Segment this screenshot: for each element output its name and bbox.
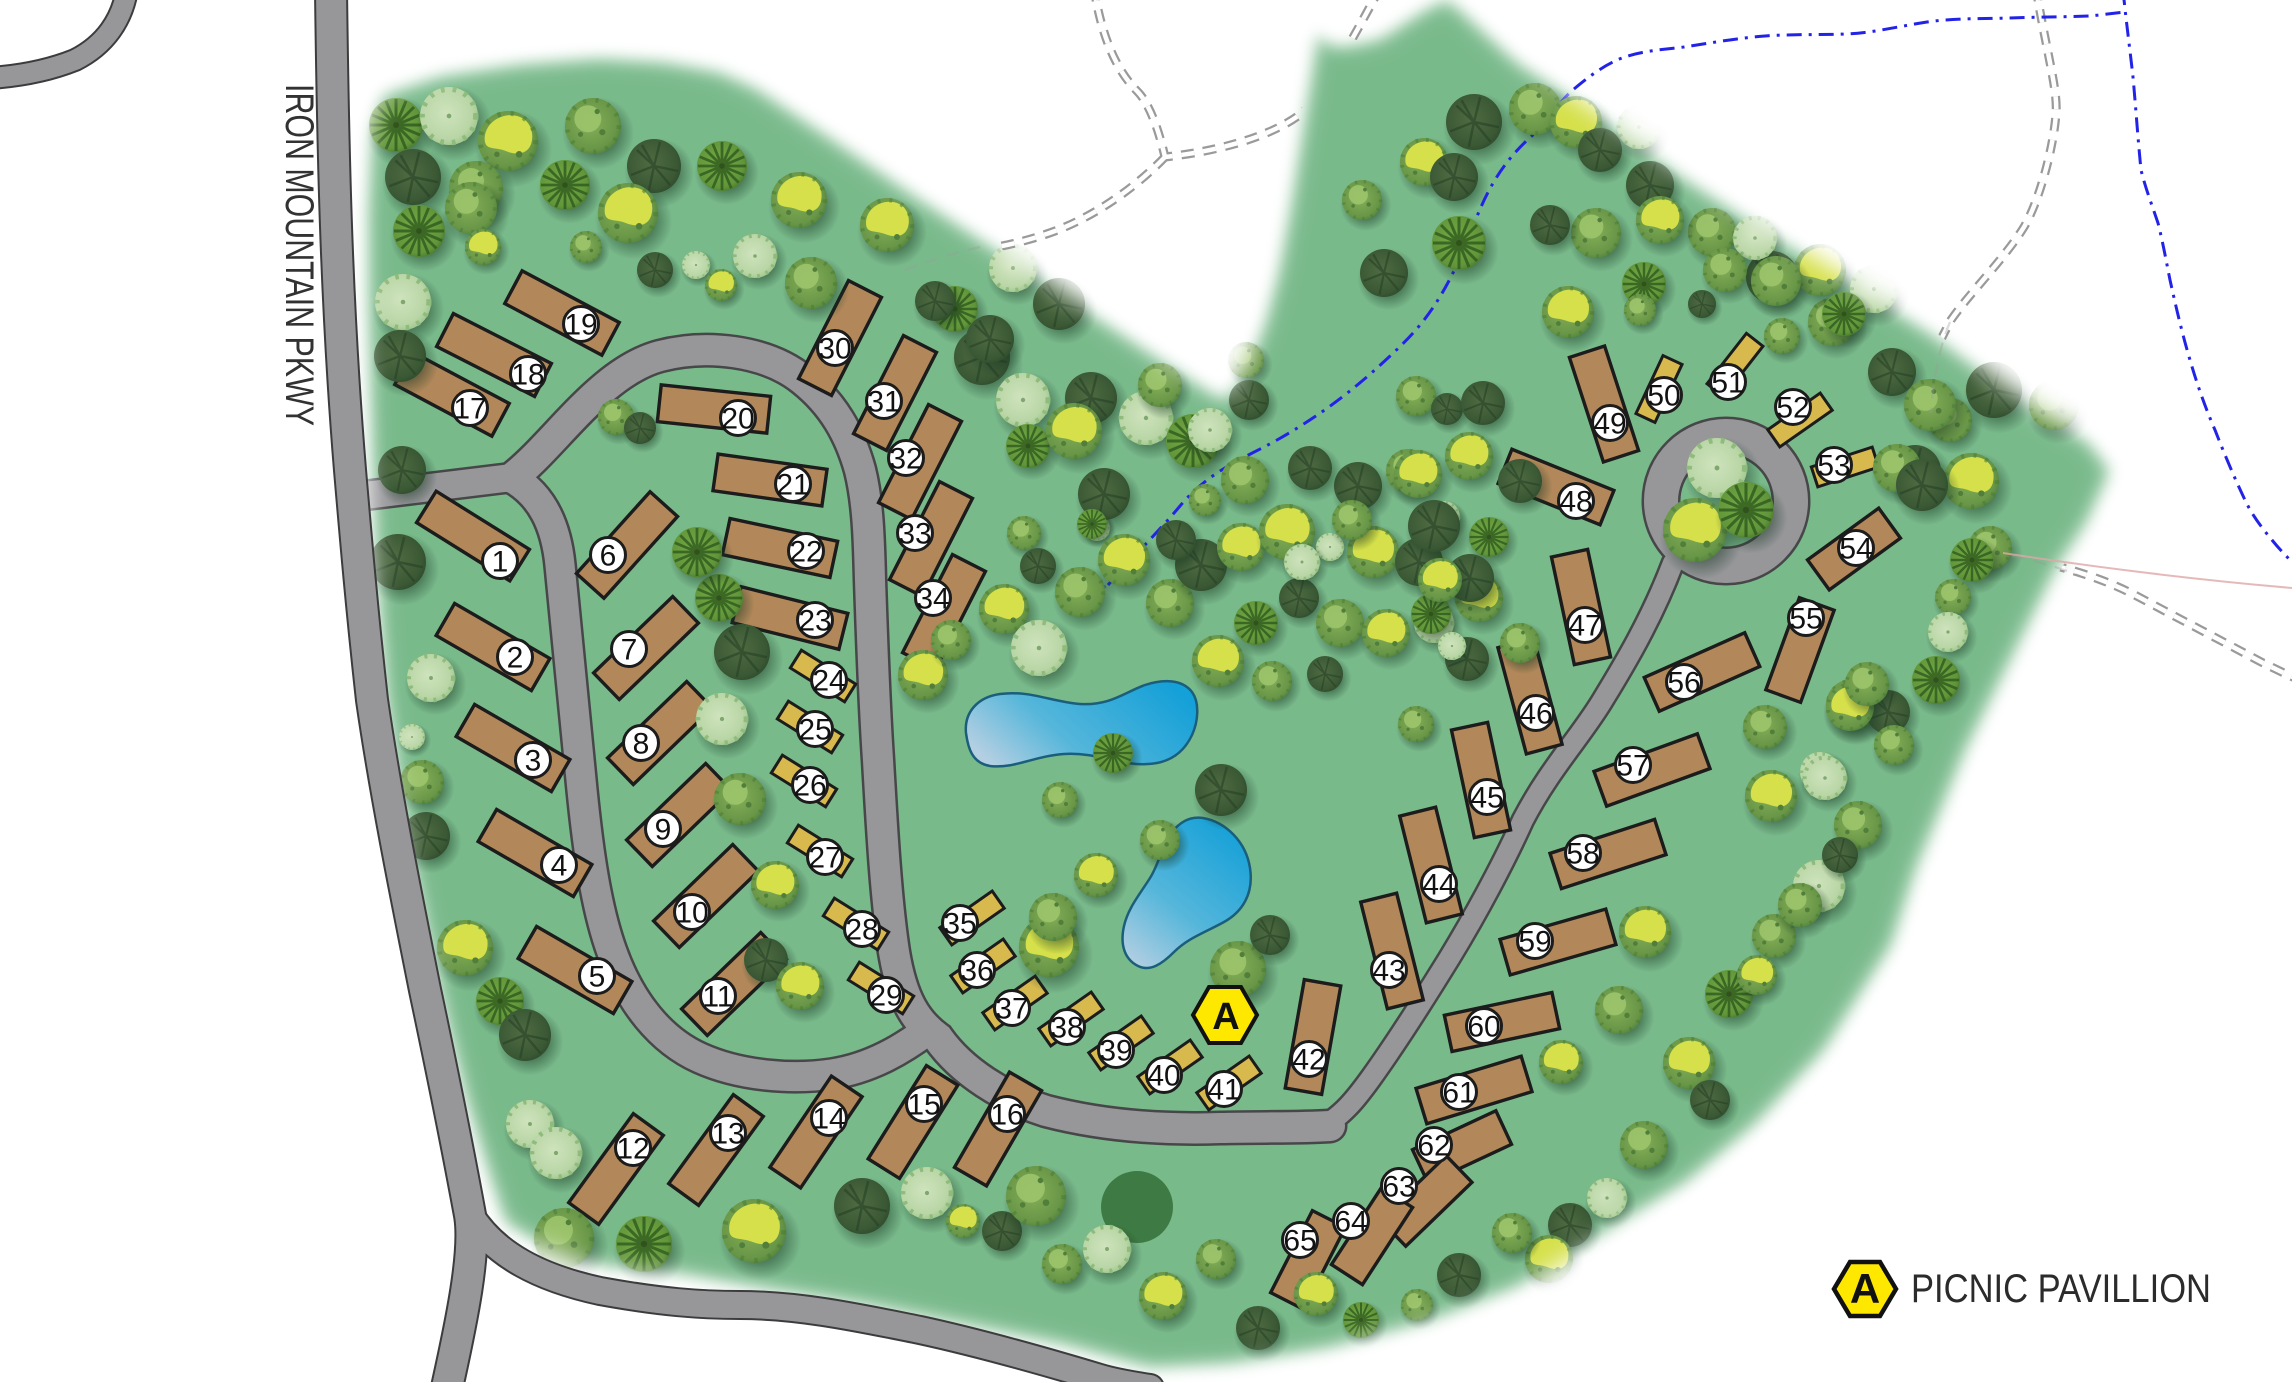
svg-text:48: 48 bbox=[1559, 486, 1592, 519]
svg-text:40: 40 bbox=[1147, 1060, 1180, 1093]
svg-text:56: 56 bbox=[1667, 667, 1700, 700]
svg-text:23: 23 bbox=[798, 605, 831, 638]
svg-text:13: 13 bbox=[711, 1118, 744, 1151]
svg-text:58: 58 bbox=[1566, 838, 1599, 871]
svg-text:A: A bbox=[1212, 996, 1239, 1038]
svg-text:47: 47 bbox=[1568, 610, 1601, 643]
svg-text:10: 10 bbox=[675, 897, 708, 930]
svg-text:51: 51 bbox=[1711, 367, 1744, 400]
svg-text:6: 6 bbox=[600, 540, 617, 573]
svg-text:28: 28 bbox=[845, 914, 878, 947]
svg-text:16: 16 bbox=[990, 1099, 1023, 1132]
svg-text:27: 27 bbox=[808, 842, 841, 875]
svg-text:35: 35 bbox=[943, 908, 976, 941]
svg-text:50: 50 bbox=[1647, 380, 1680, 413]
svg-text:49: 49 bbox=[1593, 408, 1626, 441]
svg-text:62: 62 bbox=[1417, 1130, 1450, 1163]
svg-text:24: 24 bbox=[812, 665, 845, 698]
svg-text:18: 18 bbox=[511, 359, 544, 392]
svg-text:46: 46 bbox=[1519, 698, 1552, 731]
svg-text:22: 22 bbox=[789, 536, 822, 569]
svg-text:45: 45 bbox=[1470, 782, 1503, 815]
svg-text:11: 11 bbox=[702, 981, 733, 1014]
svg-text:PICNIC PAVILLION: PICNIC PAVILLION bbox=[1911, 1267, 2211, 1311]
svg-text:15: 15 bbox=[907, 1089, 940, 1122]
svg-text:9: 9 bbox=[655, 814, 672, 847]
svg-text:32: 32 bbox=[889, 443, 922, 476]
svg-text:31: 31 bbox=[867, 386, 900, 419]
svg-text:33: 33 bbox=[898, 518, 931, 551]
svg-text:2: 2 bbox=[507, 642, 524, 675]
svg-text:36: 36 bbox=[960, 955, 993, 988]
svg-text:17: 17 bbox=[453, 393, 486, 426]
svg-text:14: 14 bbox=[812, 1103, 845, 1136]
svg-text:8: 8 bbox=[633, 728, 650, 761]
svg-text:65: 65 bbox=[1283, 1225, 1316, 1258]
svg-text:29: 29 bbox=[869, 980, 902, 1013]
svg-text:53: 53 bbox=[1817, 450, 1850, 483]
svg-text:20: 20 bbox=[721, 403, 754, 436]
svg-text:44: 44 bbox=[1422, 869, 1455, 902]
svg-text:4: 4 bbox=[551, 850, 568, 883]
svg-text:26: 26 bbox=[793, 770, 826, 803]
svg-text:1: 1 bbox=[492, 546, 509, 579]
svg-text:54: 54 bbox=[1839, 533, 1872, 566]
svg-text:42: 42 bbox=[1292, 1044, 1325, 1077]
svg-text:64: 64 bbox=[1334, 1206, 1367, 1239]
svg-text:19: 19 bbox=[564, 309, 597, 342]
svg-text:IRON MOUNTAIN PKWY: IRON MOUNTAIN PKWY bbox=[277, 84, 321, 426]
svg-text:59: 59 bbox=[1518, 926, 1551, 959]
svg-text:52: 52 bbox=[1776, 392, 1809, 425]
svg-text:37: 37 bbox=[995, 993, 1028, 1026]
svg-text:25: 25 bbox=[798, 714, 831, 747]
svg-text:61: 61 bbox=[1442, 1077, 1475, 1110]
svg-text:12: 12 bbox=[616, 1133, 649, 1166]
svg-text:57: 57 bbox=[1616, 750, 1649, 783]
svg-text:43: 43 bbox=[1372, 955, 1405, 988]
svg-text:7: 7 bbox=[621, 634, 638, 667]
svg-text:34: 34 bbox=[916, 583, 949, 616]
svg-text:63: 63 bbox=[1382, 1171, 1415, 1204]
svg-text:60: 60 bbox=[1467, 1011, 1500, 1044]
svg-text:55: 55 bbox=[1789, 603, 1822, 636]
svg-text:5: 5 bbox=[589, 961, 606, 994]
svg-text:A: A bbox=[1850, 1265, 1880, 1312]
svg-text:30: 30 bbox=[818, 333, 851, 366]
svg-text:38: 38 bbox=[1050, 1012, 1083, 1045]
svg-text:39: 39 bbox=[1099, 1035, 1132, 1068]
svg-text:41: 41 bbox=[1207, 1074, 1240, 1107]
svg-text:3: 3 bbox=[525, 745, 542, 778]
svg-text:21: 21 bbox=[776, 469, 809, 502]
